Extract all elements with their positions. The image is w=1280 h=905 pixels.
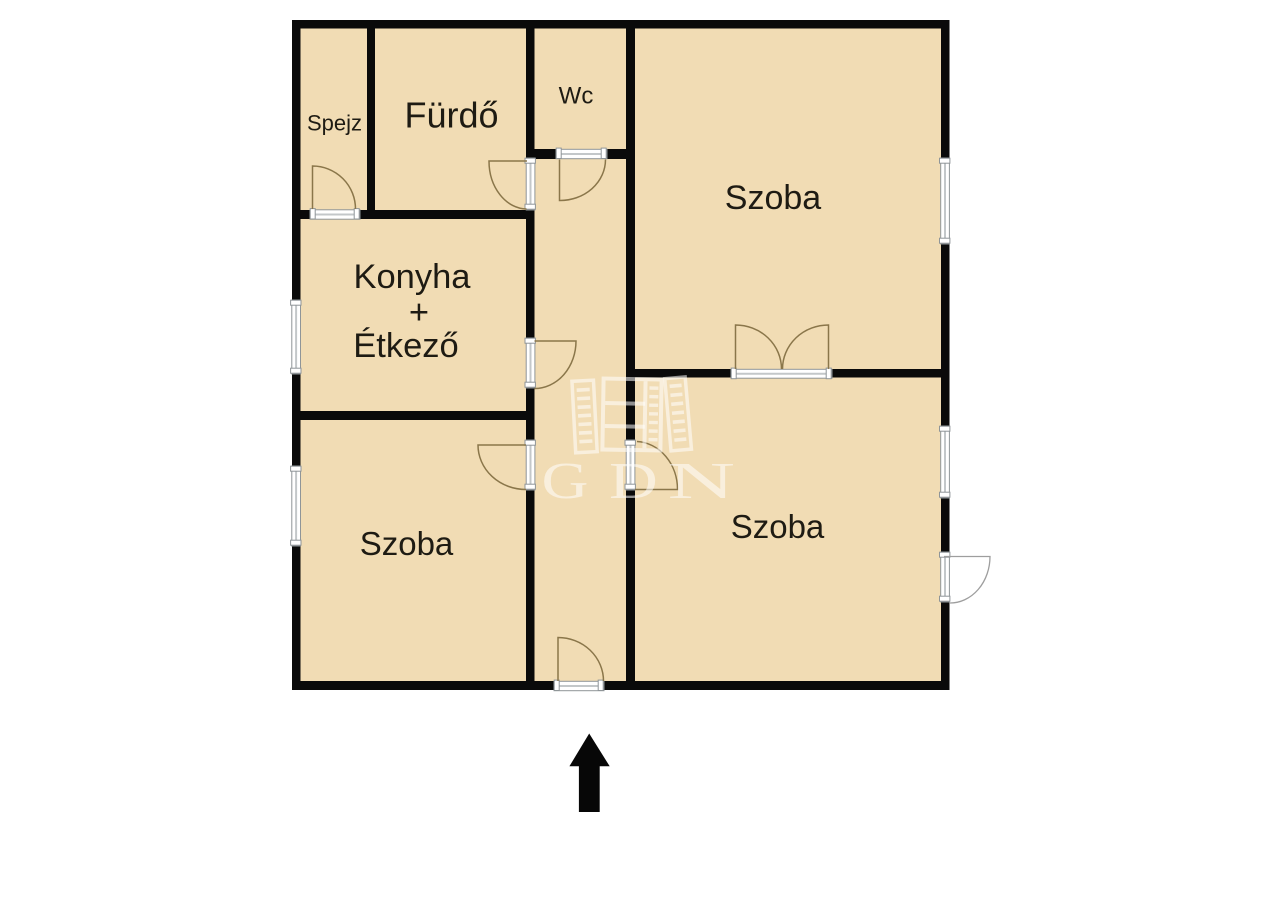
svg-text:Étkező: Étkező: [353, 326, 458, 365]
svg-text:Wc: Wc: [559, 83, 594, 110]
svg-text:Szoba: Szoba: [360, 525, 454, 562]
svg-text:Konyha: Konyha: [353, 258, 471, 296]
svg-text:Szoba: Szoba: [731, 508, 825, 545]
svg-text:Szoba: Szoba: [725, 179, 821, 217]
svg-text:G: G: [542, 452, 589, 509]
svg-text:+: +: [409, 294, 429, 332]
svg-text:Fürdő: Fürdő: [404, 95, 498, 136]
svg-text:D: D: [609, 452, 658, 510]
svg-text:Spejz: Spejz: [307, 111, 362, 136]
svg-text:N: N: [668, 453, 736, 510]
